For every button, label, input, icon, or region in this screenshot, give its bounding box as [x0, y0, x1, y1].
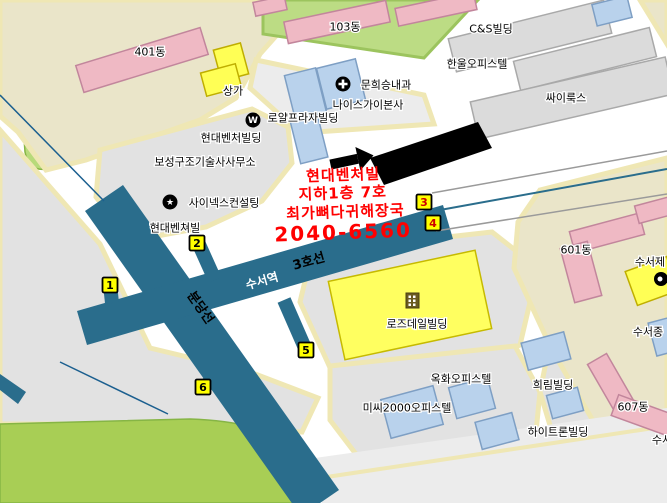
svg-text:4: 4: [429, 217, 437, 230]
label-401-dong: 401동: [134, 46, 165, 59]
exit-badge-1[interactable]: 1: [103, 278, 118, 293]
label-boseong-office: 보성구조기술사사무소: [154, 156, 255, 169]
metro-icon[interactable]: W: [246, 113, 261, 128]
svg-text:3: 3: [420, 196, 428, 209]
hospital-cross-icon[interactable]: [336, 77, 351, 92]
exit-badge-2[interactable]: 2: [190, 236, 205, 251]
ad-phone: 2040-6560: [274, 218, 412, 247]
label-607-dong: 607동: [617, 401, 648, 414]
label-suseo-je: 수서제: [635, 256, 665, 269]
ad-floor: 지하1층 7호: [298, 183, 387, 204]
exit-badge-4[interactable]: 4: [426, 216, 441, 231]
svg-text:5: 5: [302, 344, 310, 357]
label-heerim: 희림빌딩: [533, 379, 573, 392]
exit-badge-3[interactable]: 3: [417, 195, 432, 210]
label-synex-consulting: 사이넥스컨설팅: [189, 197, 260, 210]
highlighted-building: [370, 122, 492, 185]
label-hitron: 하이트론빌딩: [528, 425, 589, 439]
exit-badge-5[interactable]: 5: [299, 343, 314, 358]
svg-text:★: ★: [166, 198, 174, 208]
label-rosedale: 로즈데일빌딩: [387, 317, 448, 331]
svg-text:2: 2: [193, 237, 201, 250]
label-hyundai-venture-building: 현대벤처빌딩: [201, 132, 262, 145]
label-cs-building: C&S빌딩: [469, 23, 512, 36]
label-suseo-partial: 수서: [652, 434, 667, 447]
label-103-dong: 103동: [329, 21, 360, 34]
label-missy2000: 미씨2000오피스텔: [363, 402, 452, 415]
map-canvas[interactable]: 401동 상가 103동 C&S빌딩 한울오피스텔 싸이룩스 문희승내과 나이스…: [0, 0, 667, 503]
label-suseo-jong: 수서종: [633, 326, 663, 339]
label-hanul-officetel: 한울오피스텔: [447, 58, 508, 71]
label-hyundai-venture-bldg: 현대벤쳐빌: [150, 222, 201, 235]
label-sangga: 상가: [223, 85, 243, 98]
svg-text:6: 6: [199, 381, 207, 394]
label-clinic: 문희승내과: [361, 79, 412, 92]
label-niceguy: 나이스가이본사: [333, 99, 404, 112]
label-okhwa-officetel: 옥화오피스텔: [431, 373, 492, 386]
label-cyrux: 싸이룩스: [546, 92, 586, 105]
label-royal-plaza: 로얄프라자빌딩: [268, 111, 339, 125]
svg-text:W: W: [248, 116, 258, 126]
building-icon[interactable]: [406, 293, 419, 308]
building-blue-top: [592, 0, 632, 26]
star-icon[interactable]: ★: [163, 195, 178, 210]
exit-badge-6[interactable]: 6: [196, 380, 211, 395]
label-601-dong: 601동: [560, 244, 591, 257]
svg-text:1: 1: [106, 279, 114, 292]
